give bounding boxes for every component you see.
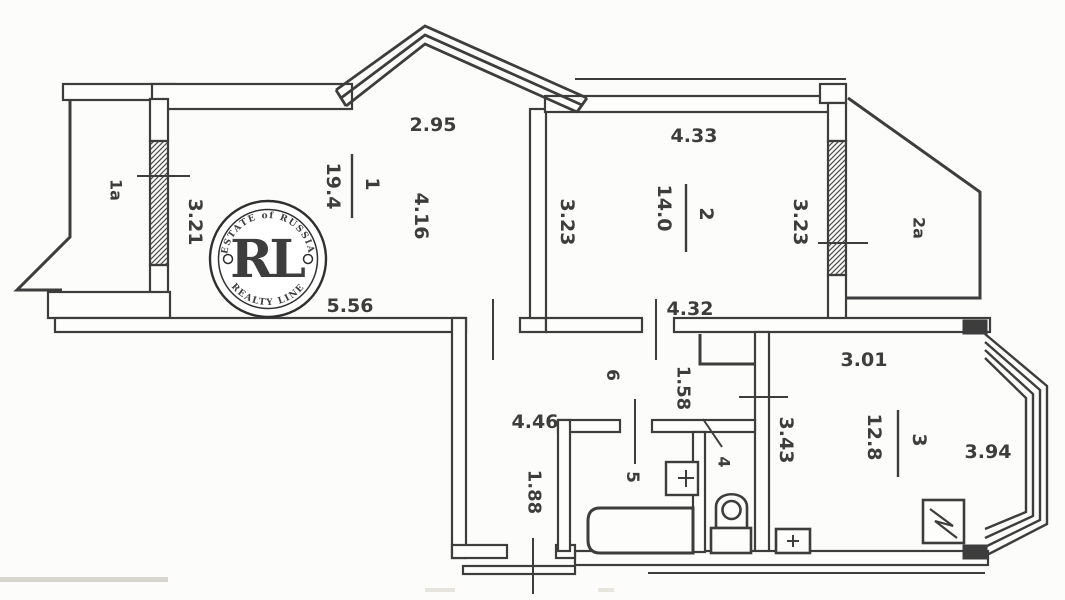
wall-bath-top-b <box>652 420 755 432</box>
balcony1a-label: 1a <box>107 179 126 201</box>
wall-room1-bottom-stub <box>520 318 546 332</box>
room1-dim-bottom: 5.56 <box>327 295 374 317</box>
toilet-tank-icon <box>711 528 751 553</box>
scan-smudge-a <box>425 588 455 592</box>
room1-dim-side: 4.16 <box>410 193 432 240</box>
room1-dim-top: 2.95 <box>410 114 457 136</box>
wall-hall-left <box>452 318 466 558</box>
bath-number-label: 5 <box>622 471 642 483</box>
balcony-2a-outline <box>846 98 980 298</box>
vent-box-icon <box>923 500 964 543</box>
balcony-1a-outline <box>17 100 70 290</box>
wall-corner-step <box>820 84 846 103</box>
wall-room3-left <box>755 332 769 558</box>
wall-room2-room3-top <box>674 318 990 332</box>
wall-room1-room2 <box>530 109 546 318</box>
scan-smudge-left <box>0 577 168 582</box>
wall-hall-bottom-a <box>452 545 507 558</box>
toilet-bowl-icon <box>716 494 747 528</box>
room1-dim-left: 3.21 <box>184 199 206 246</box>
hall-dim-width: 4.46 <box>512 411 559 433</box>
room2-dim-bottom: 4.32 <box>667 298 714 320</box>
wall-hall-bottom-thin <box>463 566 575 574</box>
floor-plan-page: 2.95 19.4 1 4.16 3.21 5.56 1a 4.33 3.23 … <box>0 0 1065 600</box>
window-room1-balcony <box>150 141 168 265</box>
fixtures <box>588 462 964 553</box>
hall-number-label: 6 <box>602 369 622 381</box>
bay-pillar-top <box>963 320 987 334</box>
room3-dim-left: 3.43 <box>775 417 797 464</box>
room3-dim-top: 3.01 <box>841 349 888 371</box>
room3-dim-right: 3.94 <box>965 441 1012 463</box>
window-room2-balcony <box>828 141 846 275</box>
room1-number-label: 1 <box>361 177 383 190</box>
balcony2a-label: 2a <box>910 217 929 239</box>
room2-area-label: 14.0 <box>653 185 675 232</box>
bay-window-top <box>336 26 587 112</box>
floor-plan: 2.95 19.4 1 4.16 3.21 5.56 1a 4.33 3.23 … <box>0 0 1065 600</box>
hall-dim-closet: 1.58 <box>673 366 694 410</box>
wall-top-room2 <box>545 96 843 112</box>
room2-dim-top: 4.33 <box>671 125 718 147</box>
bay-pillar-bottom <box>963 545 987 559</box>
fraction-bars <box>352 154 898 477</box>
scan-artifacts <box>0 577 614 592</box>
wall-right-column-upper <box>828 103 846 141</box>
hall-dim-lower: 1.88 <box>524 470 545 514</box>
wall-right-column-lower <box>828 275 846 319</box>
closet-outline <box>700 334 755 364</box>
wall-bath-left <box>558 420 570 551</box>
wall-room1-bottom <box>55 318 466 332</box>
scan-smudge-b <box>598 588 614 592</box>
toilet-number-label: 4 <box>715 456 734 467</box>
room3-area-label: 12.8 <box>863 414 885 461</box>
room3-number-label: 3 <box>908 433 930 446</box>
balcony-1a-ledge <box>48 292 170 318</box>
wall-top-room1 <box>152 84 352 109</box>
room1-area-label: 19.4 <box>322 163 344 210</box>
wall-room2-bottom-left <box>546 318 642 332</box>
room2-number-label: 2 <box>695 207 717 220</box>
badge-monogram: RL <box>230 229 305 290</box>
wall-left-column-upper <box>150 99 168 141</box>
bathtub-icon <box>588 508 693 553</box>
room2-dim-right: 3.23 <box>789 199 811 246</box>
room2-dim-left: 3.23 <box>556 199 578 246</box>
watermark-badge: ESTATE of RUSSIA REALTY LINE RL <box>210 201 326 317</box>
